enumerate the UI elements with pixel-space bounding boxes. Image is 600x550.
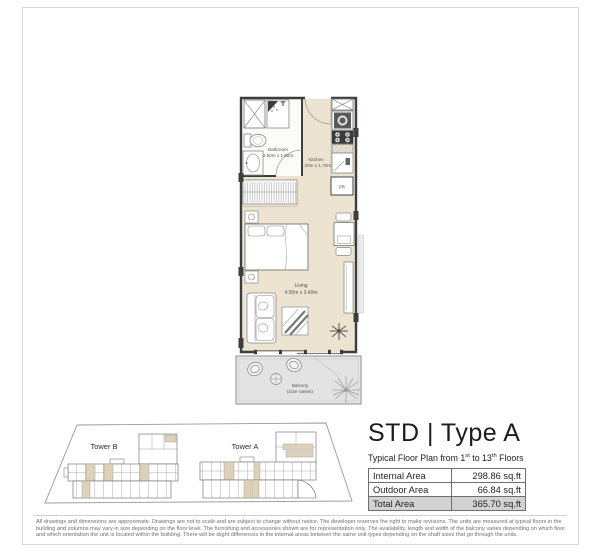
subtitle-text: Floors (497, 453, 524, 463)
adjacent-wall-strip (359, 235, 364, 313)
highlighted-unit (165, 435, 176, 442)
area-value: 365.70 sq.ft (451, 497, 525, 511)
subtitle-text: to 13 (470, 453, 492, 463)
nightstand (245, 271, 258, 283)
wardrobe (243, 180, 297, 207)
footer-divider (33, 515, 567, 516)
fridge-box: FR (331, 177, 353, 195)
bathroom-dims: 2.50m x 1.60m (263, 153, 294, 158)
tower-b-label: Tower B (90, 442, 117, 451)
area-label: Outdoor Area (369, 483, 452, 497)
rug (282, 307, 308, 335)
vanity-sink-icon (243, 151, 263, 175)
kitchen-label: Kitchen (308, 157, 324, 162)
brochure-page: { "title": { "main": "STD | Type A", "su… (0, 0, 600, 550)
fridge-label: FR (339, 185, 345, 190)
area-value: 298.86 sq.ft (451, 469, 525, 483)
highlighted-unit (283, 444, 313, 450)
kitchen-sink-icon (332, 153, 353, 173)
area-label: Total Area (369, 497, 452, 511)
total-area-row: Total Area 365.70 sq.ft (369, 497, 526, 511)
highlighted-unit (244, 480, 251, 498)
living-dims: 4.55m x 3.40m (284, 290, 317, 296)
area-label: Internal Area (369, 469, 452, 483)
floor-plan: FR (225, 85, 375, 415)
shower-icon (267, 100, 289, 128)
balcony-note: (Size Varies) (287, 389, 313, 394)
highlighted-unit (286, 451, 313, 457)
sofa (247, 293, 276, 343)
area-table: Internal Area 298.86 sq.ft Outdoor Area … (368, 468, 526, 511)
highlighted-unit (252, 480, 259, 498)
bed (245, 224, 308, 270)
tower-a-label: Tower A (232, 442, 259, 451)
living-label: Living (294, 283, 307, 289)
washing-machine-icon (332, 111, 353, 130)
key-plan: Tower B Tower A (40, 418, 360, 513)
unit-type-title: STD | Type A (368, 421, 538, 446)
balcony-label: Balcony (292, 383, 309, 388)
internal-area-row: Internal Area 298.86 sq.ft (369, 469, 526, 483)
floor-range-subtitle: Typical Floor Plan from 1st to 13th Floo… (368, 453, 538, 463)
subtitle-text: Typical Floor Plan from 1 (368, 453, 465, 463)
shaft-icon (244, 100, 265, 128)
disclaimer-text: All drawings and dimensions are approxim… (36, 519, 566, 539)
highlighted-unit (86, 464, 95, 481)
kitchen-dims: 3.20m x 1.70m (301, 163, 332, 168)
highlighted-unit (254, 462, 260, 480)
area-value: 66.84 sq.ft (451, 483, 525, 497)
nightstand (245, 211, 258, 223)
shaft-icon (332, 99, 353, 110)
kitchen-counter-icon (332, 145, 353, 154)
dining-set (334, 213, 354, 256)
highlighted-unit (140, 464, 149, 481)
balcony-table-icon (271, 374, 282, 385)
toilet-icon (244, 134, 266, 147)
tv-console (344, 262, 353, 313)
highlighted-unit (104, 464, 113, 481)
title-block: STD | Type A Typical Floor Plan from 1st… (368, 421, 538, 511)
stove-icon (332, 131, 353, 144)
highlighted-unit (82, 481, 90, 498)
outdoor-area-row: Outdoor Area 66.84 sq.ft (369, 483, 526, 497)
highlighted-unit (224, 462, 234, 480)
bathroom-label: Bathroom (268, 147, 288, 152)
